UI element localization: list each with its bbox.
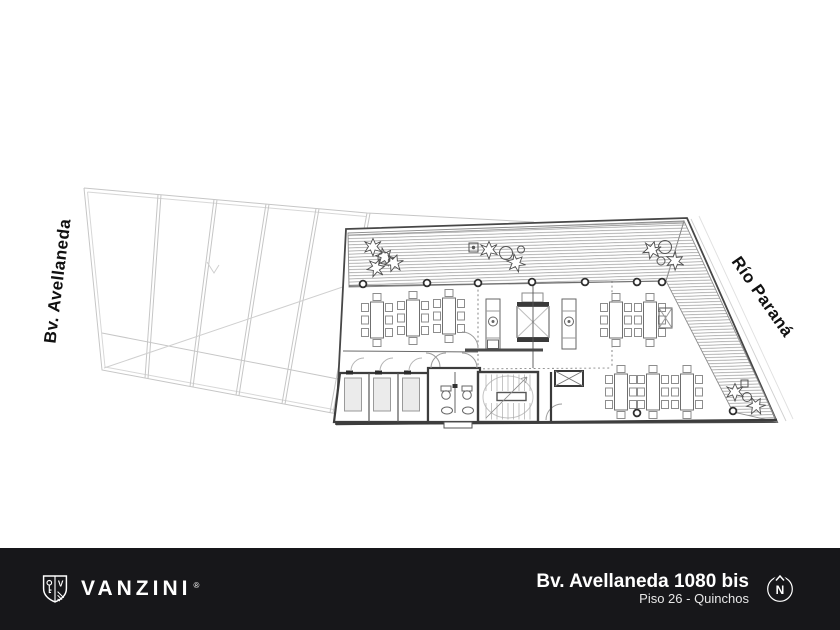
shield-monogram: V (58, 578, 64, 588)
footer-floor: Piso 26 - Quinchos (536, 592, 749, 607)
quincho-floor-plan (0, 0, 840, 630)
footer-bar: V VANZINI ® Bv. Avellaneda 1080 bis Piso… (0, 548, 840, 630)
terrace-deck-top (348, 221, 684, 287)
compass-n-label: N (776, 583, 785, 597)
brand-name: VANZINI (81, 577, 191, 601)
footer-address: Bv. Avellaneda 1080 bis (536, 571, 749, 593)
brand-logo: V VANZINI ® (42, 575, 199, 603)
vanzini-shield-icon: V (42, 575, 68, 603)
compass-north-icon: N (765, 574, 795, 604)
footer-address-block: Bv. Avellaneda 1080 bis Piso 26 - Quinch… (536, 571, 749, 608)
flyer-page: Bv. Avellaneda Río Paraná V VANZINI ® Bv… (0, 0, 840, 630)
registered-mark: ® (193, 581, 199, 590)
